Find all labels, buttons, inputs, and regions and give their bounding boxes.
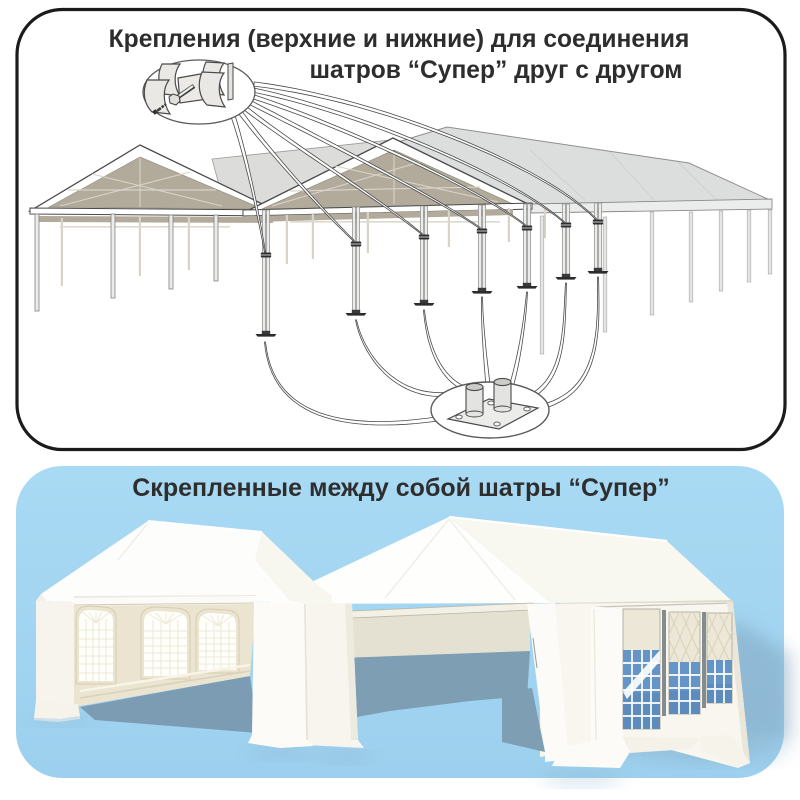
- svg-text:Крепления (верхние и нижние) д: Крепления (верхние и нижние) для соедине…: [109, 26, 690, 53]
- svg-text:Скрепленные между собой шатры: Скрепленные между собой шатры “Супер”: [132, 474, 670, 502]
- svg-text:шатров “Супер” друг с другом: шатров “Супер” друг с другом: [309, 57, 682, 84]
